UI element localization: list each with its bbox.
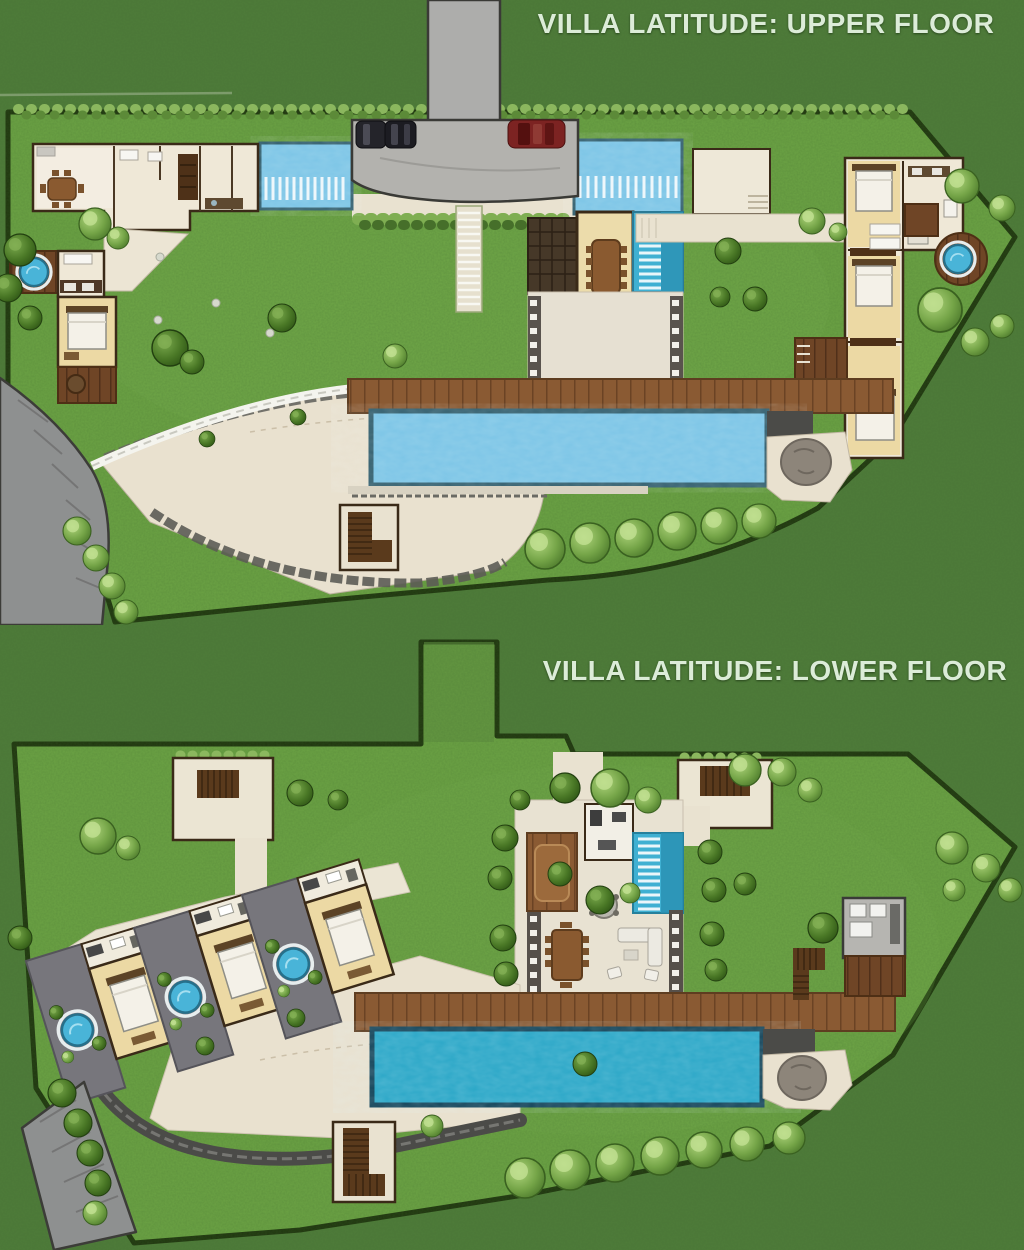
bed bbox=[852, 164, 896, 211]
counter bbox=[37, 147, 55, 156]
stair-landing bbox=[372, 540, 392, 562]
pool-texture bbox=[371, 411, 767, 485]
stone-coping bbox=[767, 411, 813, 437]
upper-floor-title: VILLA LATITUDE: UPPER FLOOR bbox=[538, 8, 995, 39]
pool-edge bbox=[348, 486, 648, 494]
stone-coping bbox=[763, 1029, 815, 1055]
entrance-pond-left bbox=[260, 143, 352, 209]
long-table bbox=[592, 240, 620, 294]
garden-stair-upper bbox=[340, 505, 398, 570]
bed bbox=[852, 259, 896, 306]
kitchen-counter bbox=[205, 198, 243, 209]
water-wall bbox=[633, 833, 683, 913]
pool-terrace-lower bbox=[355, 993, 895, 1110]
stair-closet bbox=[178, 154, 198, 200]
entrance-pond-right bbox=[574, 140, 682, 214]
car-dark bbox=[385, 121, 416, 148]
sink bbox=[932, 168, 942, 175]
pool-texture bbox=[372, 1029, 762, 1105]
shelf bbox=[890, 904, 900, 944]
timber-sun-deck bbox=[355, 993, 895, 1031]
pool-terrace-upper bbox=[348, 379, 893, 502]
lower-floor-plan: VILLA LATITUDE: LOWER FLOOR bbox=[0, 625, 1024, 1250]
garden-stair-lower bbox=[333, 1122, 395, 1202]
lounge-chair bbox=[67, 375, 85, 393]
drive-stem bbox=[428, 0, 500, 124]
court-floor bbox=[693, 149, 770, 214]
stair-run bbox=[343, 1128, 369, 1174]
deck-square bbox=[905, 204, 938, 236]
car-dark bbox=[356, 121, 386, 148]
fixture bbox=[590, 810, 602, 826]
villa-latitude-site-plan: VILLA LATITUDE: UPPER FLOOR bbox=[0, 0, 1024, 1250]
sink bbox=[912, 168, 922, 175]
sink bbox=[82, 283, 94, 291]
dining-table-set bbox=[545, 922, 589, 988]
bench bbox=[64, 352, 79, 360]
pavilion-roof bbox=[528, 218, 578, 294]
timber-sun-deck bbox=[348, 379, 893, 413]
stair-treads bbox=[343, 1134, 369, 1170]
fixture bbox=[120, 150, 138, 160]
stair-treads bbox=[348, 518, 372, 554]
headboard bbox=[66, 306, 108, 313]
appliance bbox=[850, 904, 866, 917]
fixture bbox=[870, 238, 900, 249]
wardrobe bbox=[850, 338, 896, 346]
appliance bbox=[850, 922, 872, 937]
sink bbox=[211, 200, 217, 206]
jacuzzi-tub bbox=[941, 242, 975, 276]
bed bbox=[68, 313, 106, 349]
courtyard bbox=[528, 292, 683, 382]
boulder bbox=[781, 439, 831, 485]
boulder bbox=[778, 1056, 826, 1100]
toilet bbox=[944, 200, 957, 217]
sink bbox=[64, 283, 76, 291]
slope-stair bbox=[456, 206, 482, 312]
fixture bbox=[612, 812, 626, 822]
appliance bbox=[870, 904, 886, 917]
fixture bbox=[148, 152, 162, 161]
car-red bbox=[508, 120, 565, 148]
fixture bbox=[870, 224, 900, 235]
vanity bbox=[64, 254, 92, 264]
west-deck bbox=[795, 338, 847, 380]
upper-floor-plan: VILLA LATITUDE: UPPER FLOOR bbox=[0, 0, 1024, 625]
service-deck bbox=[845, 956, 905, 996]
lower-floor-title: VILLA LATITUDE: LOWER FLOOR bbox=[543, 655, 1008, 686]
fixture bbox=[598, 840, 616, 850]
